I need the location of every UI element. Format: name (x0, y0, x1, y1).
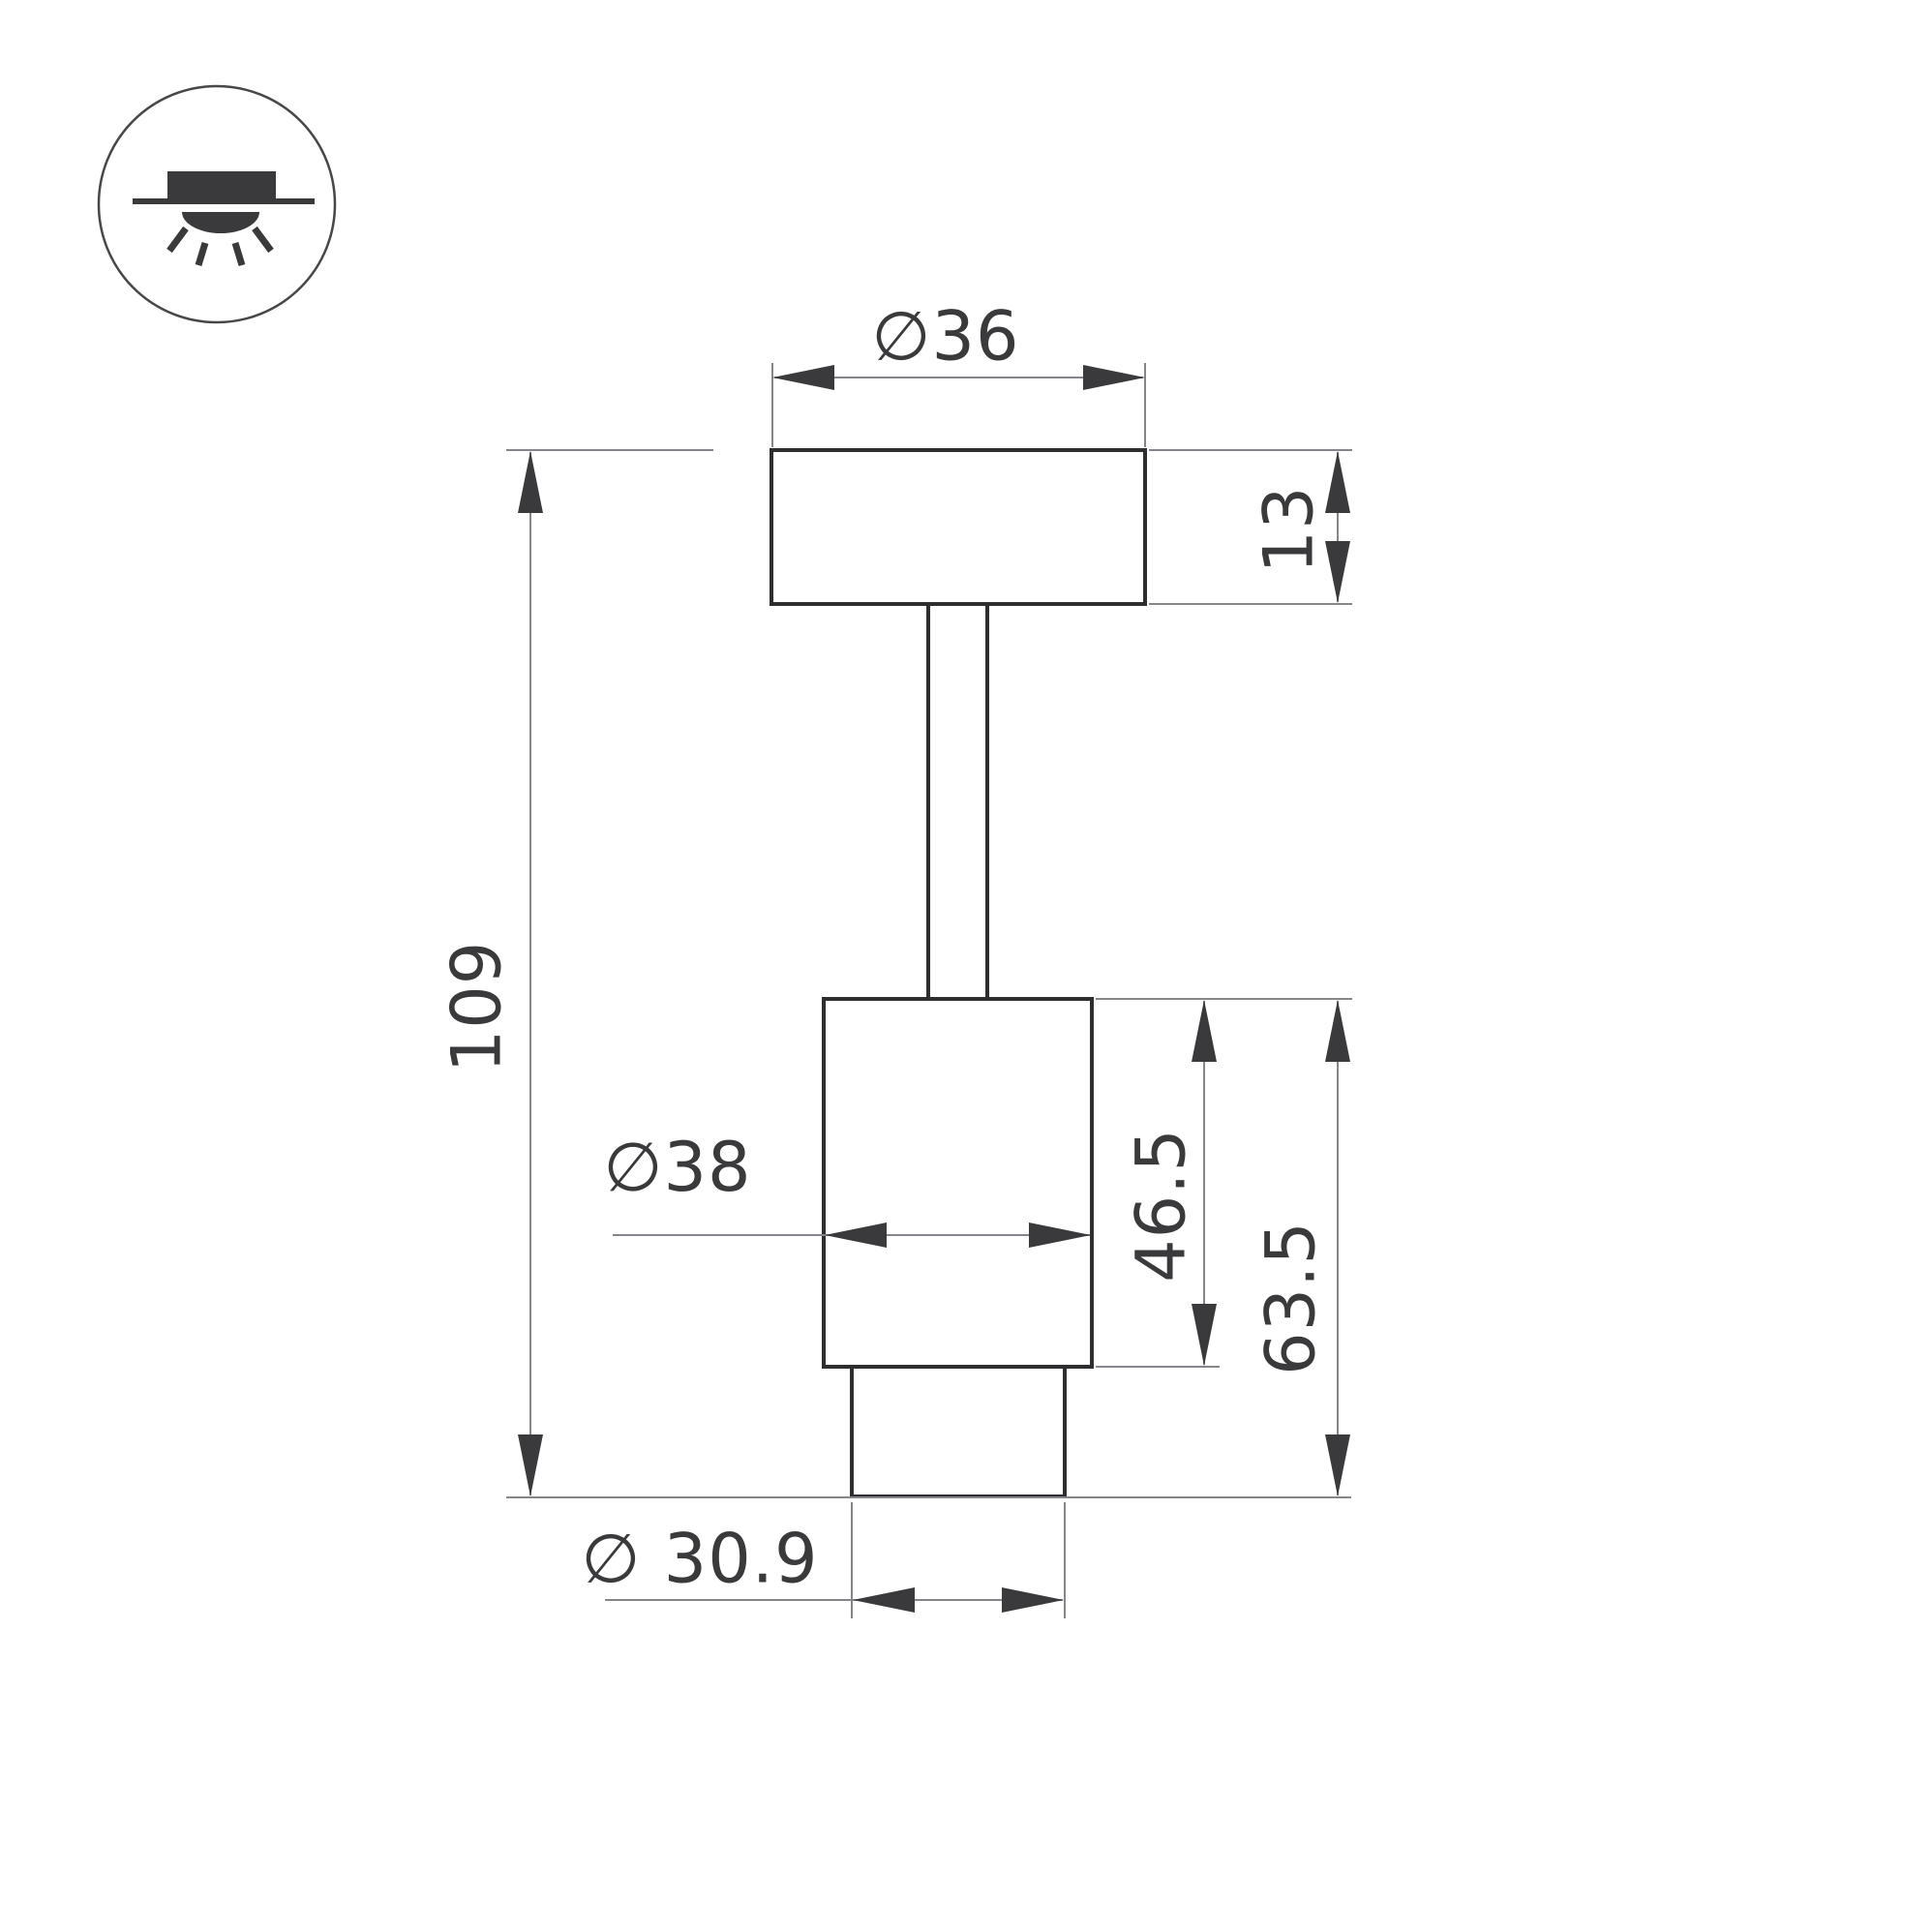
dimension-body-diameter: ∅38 (603, 1128, 1091, 1248)
dimension-label-top-diameter: ∅36 (871, 297, 1019, 377)
fixture-top-cap (771, 450, 1145, 604)
arrowhead-right (1029, 1223, 1091, 1248)
mounting-type-icon (99, 86, 335, 322)
fixture-outline (771, 450, 1145, 1496)
fixture-housing-glyph (167, 171, 276, 200)
dimension-bottom-diameter: ∅ 30.9 (581, 1502, 1065, 1618)
dimension-top-diameter: ∅36 (772, 297, 1145, 448)
arrowhead-right (1083, 365, 1145, 390)
light-ray-icon (255, 228, 271, 251)
dimension-drawing-page: ∅36 13 109 ∅38 46.5 63.5 (0, 0, 1932, 1932)
fixture-body (824, 999, 1092, 1367)
dimension-overall-height: 109 (438, 450, 714, 1496)
dimension-label-body-height: 46.5 (1122, 1128, 1201, 1283)
dimension-lower-section-height: 63.5 (1252, 1000, 1351, 1496)
dimension-label-body-diameter: ∅38 (603, 1128, 751, 1207)
arrowhead-down (518, 1434, 543, 1496)
technical-drawing: ∅36 13 109 ∅38 46.5 63.5 (0, 0, 1932, 1932)
dimension-label-bottom-diameter: ∅ 30.9 (581, 1520, 818, 1599)
arrowhead-down (1325, 541, 1350, 603)
dimension-cap-height: 13 (1149, 450, 1352, 604)
dimension-label-overall-height: 109 (438, 941, 517, 1073)
arrowhead-left (772, 365, 834, 390)
light-ray-icon (198, 243, 205, 265)
light-dome-glyph (182, 212, 259, 233)
arrowhead-up (1325, 1000, 1350, 1062)
arrowhead-left (853, 1587, 915, 1613)
arrowhead-left (825, 1223, 887, 1248)
light-ray-icon (169, 228, 186, 251)
arrowhead-down (1192, 1304, 1217, 1366)
arrowhead-right (1002, 1587, 1064, 1613)
arrowhead-up (1325, 451, 1350, 513)
arrowhead-up (1192, 1000, 1217, 1062)
arrowhead-down (1325, 1434, 1350, 1496)
dimension-label-cap-height: 13 (1250, 485, 1329, 573)
dimension-label-lower-section-height: 63.5 (1252, 1221, 1331, 1375)
arrowhead-up (518, 451, 543, 513)
light-ray-icon (235, 243, 242, 265)
